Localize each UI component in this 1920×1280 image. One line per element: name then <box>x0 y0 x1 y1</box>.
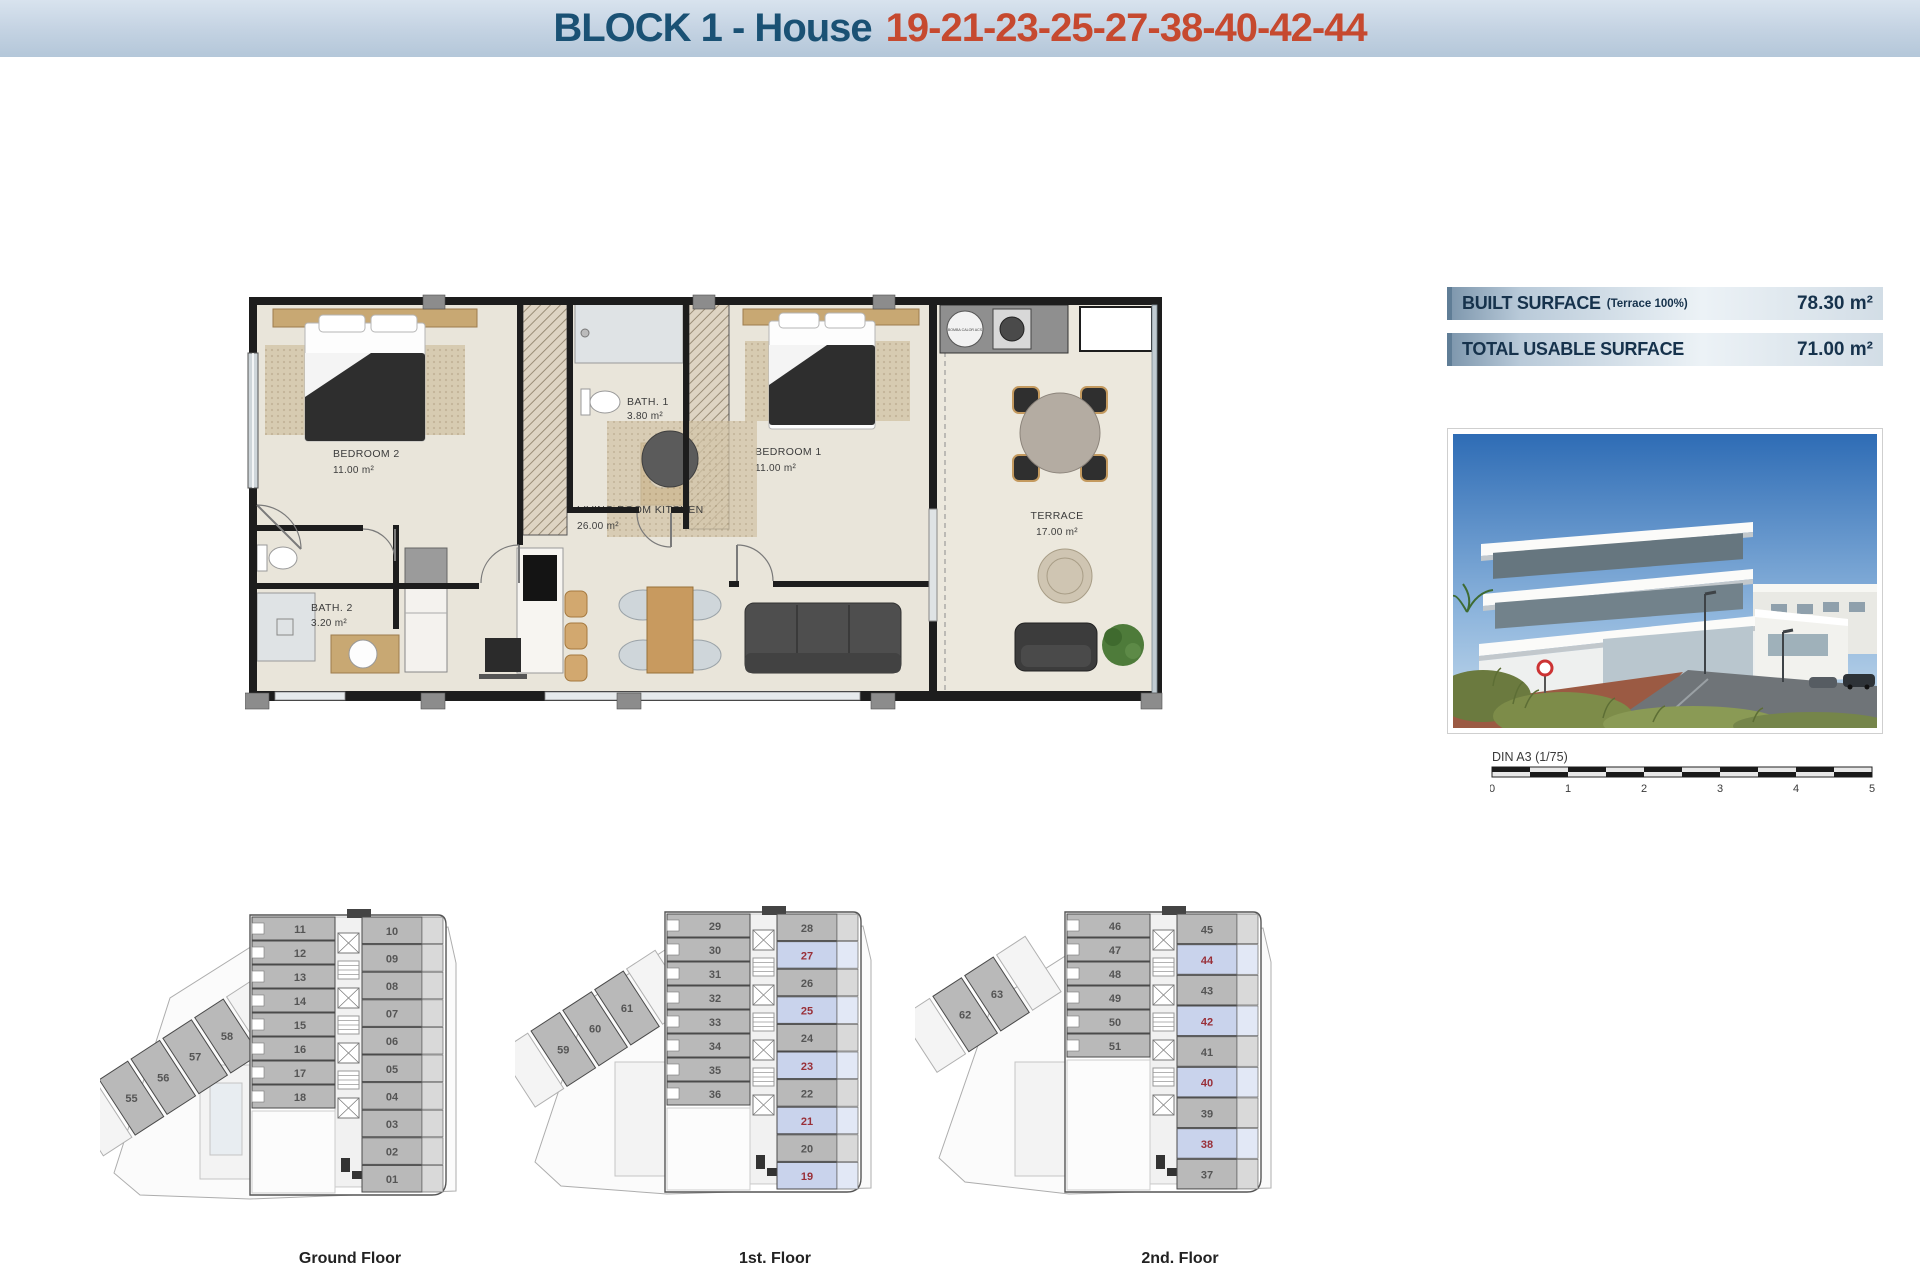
building-photo <box>1447 428 1883 734</box>
svg-text:46: 46 <box>1109 921 1121 933</box>
svg-text:14: 14 <box>294 996 307 1008</box>
svg-text:34: 34 <box>709 1041 722 1053</box>
svg-text:45: 45 <box>1201 924 1213 936</box>
first-floor-plan: 6160592930313233343536282726252423222120… <box>515 900 875 1200</box>
svg-text:26: 26 <box>801 978 813 990</box>
svg-text:01: 01 <box>386 1174 398 1186</box>
left-units: 1112131415161718 <box>252 917 335 1108</box>
svg-text:36: 36 <box>709 1089 721 1101</box>
scale-tick: 3 <box>1717 783 1723 795</box>
apartment-floor-plan: BEDROOM 2 11.00 m² BATH. 1 3.80 m² BE <box>245 293 1165 711</box>
svg-text:06: 06 <box>386 1036 398 1048</box>
built-surface-note: (Terrace 100%) <box>1607 298 1688 310</box>
wardrobe-hall-icon <box>523 301 567 535</box>
scale-tick: 0 <box>1490 783 1495 795</box>
svg-text:10: 10 <box>386 926 398 938</box>
ground-floor-caption: Ground Floor <box>240 1250 460 1268</box>
second-floor-plan: 6362464748495051454443424140393837 <box>915 900 1275 1200</box>
built-surface-row: BUILT SURFACE (Terrace 100%) 78.30 m² <box>1447 287 1883 320</box>
page-title: BLOCK 1 - House <box>553 6 871 51</box>
svg-text:47: 47 <box>1109 945 1121 957</box>
svg-text:08: 08 <box>386 981 398 993</box>
usable-surface-row: TOTAL USABLE SURFACE 71.00 m² <box>1447 333 1883 366</box>
scale-tick: 5 <box>1869 783 1875 795</box>
first-floor-caption: 1st. Floor <box>665 1250 885 1268</box>
right-units: 454443424140393837 <box>1177 914 1258 1189</box>
svg-text:24: 24 <box>801 1033 814 1045</box>
svg-text:59: 59 <box>557 1044 569 1056</box>
svg-text:27: 27 <box>801 950 813 962</box>
svg-text:11.00 m²: 11.00 m² <box>333 465 374 476</box>
svg-text:57: 57 <box>189 1052 201 1064</box>
svg-text:32: 32 <box>709 993 721 1005</box>
svg-text:09: 09 <box>386 953 398 965</box>
svg-text:39: 39 <box>1201 1108 1213 1120</box>
svg-text:TERRACE: TERRACE <box>1031 510 1084 522</box>
scale-bar-label: DIN A3 (1/75) <box>1492 750 1568 764</box>
scale-bar: DIN A3 (1/75) 012345 <box>1490 750 1890 802</box>
svg-text:35: 35 <box>709 1065 721 1077</box>
svg-text:43: 43 <box>1201 986 1213 998</box>
svg-text:50: 50 <box>1109 1017 1121 1029</box>
svg-text:BEDROOM 2: BEDROOM 2 <box>333 448 400 460</box>
second-floor-caption: 2nd. Floor <box>1070 1250 1290 1268</box>
svg-text:13: 13 <box>294 972 306 984</box>
svg-text:17.00 m²: 17.00 m² <box>1036 527 1078 538</box>
built-surface-label: BUILT SURFACE <box>1462 293 1601 314</box>
terrace-slider <box>929 509 937 621</box>
terrace-glass-rail <box>1152 305 1157 693</box>
svg-text:04: 04 <box>386 1091 399 1103</box>
svg-text:20: 20 <box>801 1144 813 1156</box>
svg-text:33: 33 <box>709 1017 721 1029</box>
svg-text:19: 19 <box>801 1171 813 1183</box>
svg-text:17: 17 <box>294 1068 306 1080</box>
svg-text:49: 49 <box>1109 993 1121 1005</box>
svg-text:51: 51 <box>1109 1041 1121 1053</box>
svg-text:26.00 m²: 26.00 m² <box>577 521 619 532</box>
svg-text:BATH. 2: BATH. 2 <box>311 602 353 614</box>
scale-tick: 1 <box>1565 783 1571 795</box>
svg-text:11.00 m²: 11.00 m² <box>755 463 796 474</box>
svg-text:63: 63 <box>991 989 1003 1001</box>
scale-tick: 4 <box>1793 783 1799 795</box>
svg-text:31: 31 <box>709 969 721 981</box>
svg-text:12: 12 <box>294 948 306 960</box>
svg-text:15: 15 <box>294 1020 306 1032</box>
svg-text:05: 05 <box>386 1064 398 1076</box>
svg-text:22: 22 <box>801 1088 813 1100</box>
svg-text:40: 40 <box>1201 1078 1213 1090</box>
svg-text:BATH. 1: BATH. 1 <box>627 396 669 408</box>
svg-text:16: 16 <box>294 1044 306 1056</box>
left-units: 2930313233343536 <box>667 914 750 1105</box>
svg-text:02: 02 <box>386 1147 398 1159</box>
svg-text:41: 41 <box>1201 1047 1213 1059</box>
svg-text:60: 60 <box>589 1024 601 1036</box>
built-surface-value: 78.30 m² <box>1797 293 1873 315</box>
building-photo-art <box>1453 434 1877 728</box>
svg-text:29: 29 <box>709 921 721 933</box>
svg-text:61: 61 <box>621 1003 633 1015</box>
svg-text:38: 38 <box>1201 1139 1213 1151</box>
svg-text:07: 07 <box>386 1009 398 1021</box>
usable-surface-label: TOTAL USABLE SURFACE <box>1462 339 1684 360</box>
left-units: 464748495051 <box>1067 914 1150 1057</box>
svg-text:25: 25 <box>801 1006 813 1018</box>
ground-floor-plan: 5857565511121314151617181009080706050403… <box>100 903 460 1203</box>
svg-text:23: 23 <box>801 1061 813 1073</box>
header-banner: BLOCK 1 - House 19-21-23-25-27-38-40-42-… <box>0 0 1920 57</box>
svg-text:42: 42 <box>1201 1016 1213 1028</box>
svg-text:48: 48 <box>1109 969 1121 981</box>
svg-text:30: 30 <box>709 945 721 957</box>
svg-text:58: 58 <box>221 1031 233 1043</box>
scale-tick: 2 <box>1641 783 1647 795</box>
svg-text:44: 44 <box>1201 955 1214 967</box>
svg-text:62: 62 <box>959 1010 971 1022</box>
svg-text:55: 55 <box>125 1093 137 1105</box>
utility-label: BOMBA CALOR ACS <box>948 328 983 332</box>
svg-text:21: 21 <box>801 1116 813 1128</box>
svg-text:28: 28 <box>801 923 813 935</box>
svg-text:18: 18 <box>294 1092 306 1104</box>
brochure-page: BLOCK 1 - House 19-21-23-25-27-38-40-42-… <box>0 0 1920 1280</box>
svg-text:BEDROOM 1: BEDROOM 1 <box>755 446 822 458</box>
surface-info: BUILT SURFACE (Terrace 100%) 78.30 m² TO… <box>1447 287 1883 379</box>
svg-text:3.20 m²: 3.20 m² <box>311 618 347 629</box>
svg-text:56: 56 <box>157 1072 169 1084</box>
svg-text:11: 11 <box>294 924 306 936</box>
svg-text:03: 03 <box>386 1119 398 1131</box>
usable-surface-value: 71.00 m² <box>1797 339 1873 361</box>
svg-text:37: 37 <box>1201 1170 1213 1182</box>
svg-text:3.80 m²: 3.80 m² <box>627 411 663 422</box>
page-title-house-numbers: 19-21-23-25-27-38-40-42-44 <box>886 6 1367 51</box>
